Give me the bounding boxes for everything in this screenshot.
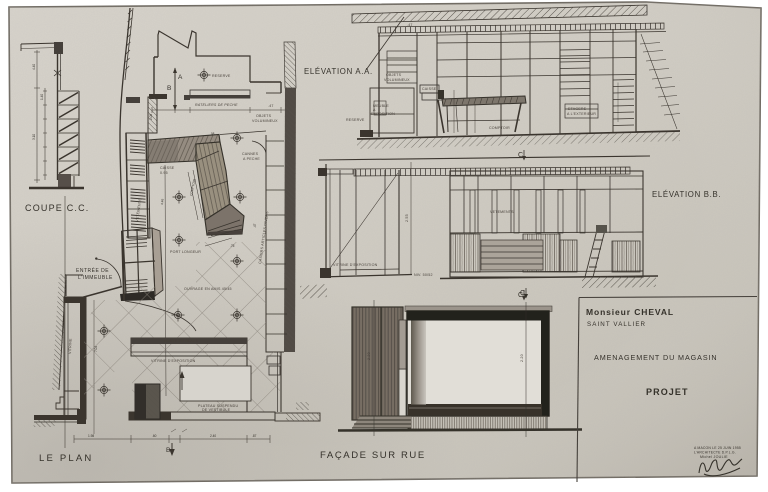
svg-text:.75: .75 <box>230 244 235 248</box>
svg-text:.47: .47 <box>407 23 413 27</box>
svg-text:.47: .47 <box>268 104 274 108</box>
svg-text:VETEMENTS: VETEMENTS <box>490 210 514 214</box>
svg-text:CAISSE: CAISSE <box>422 87 437 91</box>
svg-text:0.95: 0.95 <box>160 171 168 175</box>
svg-text:VITRINE: VITRINE <box>68 338 73 354</box>
svg-text:PORT LONGEUR: PORT LONGEUR <box>170 250 201 254</box>
svg-text:FAÇADE SUR RUE: FAÇADE SUR RUE <box>320 450 426 461</box>
svg-text:L'IMMEUBLE: L'IMMEUBLE <box>78 275 113 281</box>
svg-text:RESERVE: RESERVE <box>212 74 231 78</box>
svg-text:NIV. 50/52: NIV. 50/52 <box>414 273 433 277</box>
svg-text:ELÉVATION A.A.: ELÉVATION A.A. <box>304 67 373 76</box>
svg-text:.87: .87 <box>252 434 257 438</box>
svg-text:A MACON LE 25 JUIN 1955: A MACON LE 25 JUIN 1955 <box>694 446 741 450</box>
svg-text:VOLUMINEUX: VOLUMINEUX <box>252 119 278 123</box>
svg-text:4.40: 4.40 <box>32 64 36 70</box>
svg-text:Michel JOULIE: Michel JOULIE <box>700 455 728 459</box>
svg-text:.08: .08 <box>210 132 215 136</box>
svg-text:SAINT VALLIER: SAINT VALLIER <box>587 321 646 328</box>
svg-text:2.20: 2.20 <box>520 354 524 362</box>
svg-text:EXPOSITION: EXPOSITION <box>371 112 395 116</box>
svg-text:COMPTOIR: COMPTOIR <box>489 126 510 130</box>
svg-text:3.10: 3.10 <box>32 134 36 140</box>
svg-text:ETAGERE: ETAGERE <box>568 107 587 111</box>
svg-text:ELÉVATION B.B.: ELÉVATION B.B. <box>652 190 721 199</box>
svg-text:OBJETS: OBJETS <box>256 114 272 118</box>
svg-text:L'ARCHITECTE D.P.L.G.: L'ARCHITECTE D.P.L.G. <box>694 451 736 455</box>
svg-text:B: B <box>166 447 170 454</box>
svg-text:CANNES: CANNES <box>242 152 259 156</box>
svg-text:.60: .60 <box>152 434 157 438</box>
svg-text:7.04: 7.04 <box>94 346 98 352</box>
svg-text:VITRINE D'EXPOSITION: VITRINE D'EXPOSITION <box>333 263 378 267</box>
svg-text:RESERVE: RESERVE <box>346 118 365 122</box>
svg-text:CAISSE: CAISSE <box>160 166 175 170</box>
svg-text:VITRINE D'EXPOSITION: VITRINE D'EXPOSITION <box>151 359 196 363</box>
svg-text:4.46: 4.46 <box>160 198 165 205</box>
svg-text:2.20: 2.20 <box>367 352 371 360</box>
svg-text:ENTRÉE DE: ENTRÉE DE <box>76 267 109 274</box>
svg-text:2.08: 2.08 <box>149 114 153 120</box>
svg-text:PORTE EN GLACE: PORTE EN GLACE <box>164 339 199 343</box>
svg-text:AMENAGEMENT DU MAGASIN: AMENAGEMENT DU MAGASIN <box>594 353 718 362</box>
svg-text:1.40: 1.40 <box>40 94 44 100</box>
svg-text:2.55: 2.55 <box>405 214 409 222</box>
svg-text:B: B <box>167 85 171 92</box>
svg-text:A PECHE: A PECHE <box>243 157 260 161</box>
svg-text:VOLUMINEUX: VOLUMINEUX <box>384 78 410 82</box>
svg-text:OBJETS: OBJETS <box>386 73 402 77</box>
svg-text:RATELIERS DE PECHE: RATELIERS DE PECHE <box>195 103 238 107</box>
svg-text:A L'EXTERIEUR: A L'EXTERIEUR <box>567 112 596 116</box>
svg-text:.47: .47 <box>253 223 257 228</box>
svg-text:DE VESTIBULE: DE VESTIBULE <box>202 408 231 412</box>
svg-text:OUVRAGE EN AMIS 45/45: OUVRAGE EN AMIS 45/45 <box>184 287 232 291</box>
svg-text:LE PLAN: LE PLAN <box>39 453 93 464</box>
svg-text:PROJET: PROJET <box>646 387 689 397</box>
svg-text:COUPE C.C.: COUPE C.C. <box>25 203 90 213</box>
svg-text:C: C <box>520 290 525 297</box>
svg-text:2.40: 2.40 <box>210 434 216 438</box>
svg-text:Monsieur CHEVAL: Monsieur CHEVAL <box>586 307 674 317</box>
svg-text:C: C <box>518 152 523 159</box>
svg-text:1.98: 1.98 <box>88 434 94 438</box>
svg-text:A: A <box>178 74 183 81</box>
